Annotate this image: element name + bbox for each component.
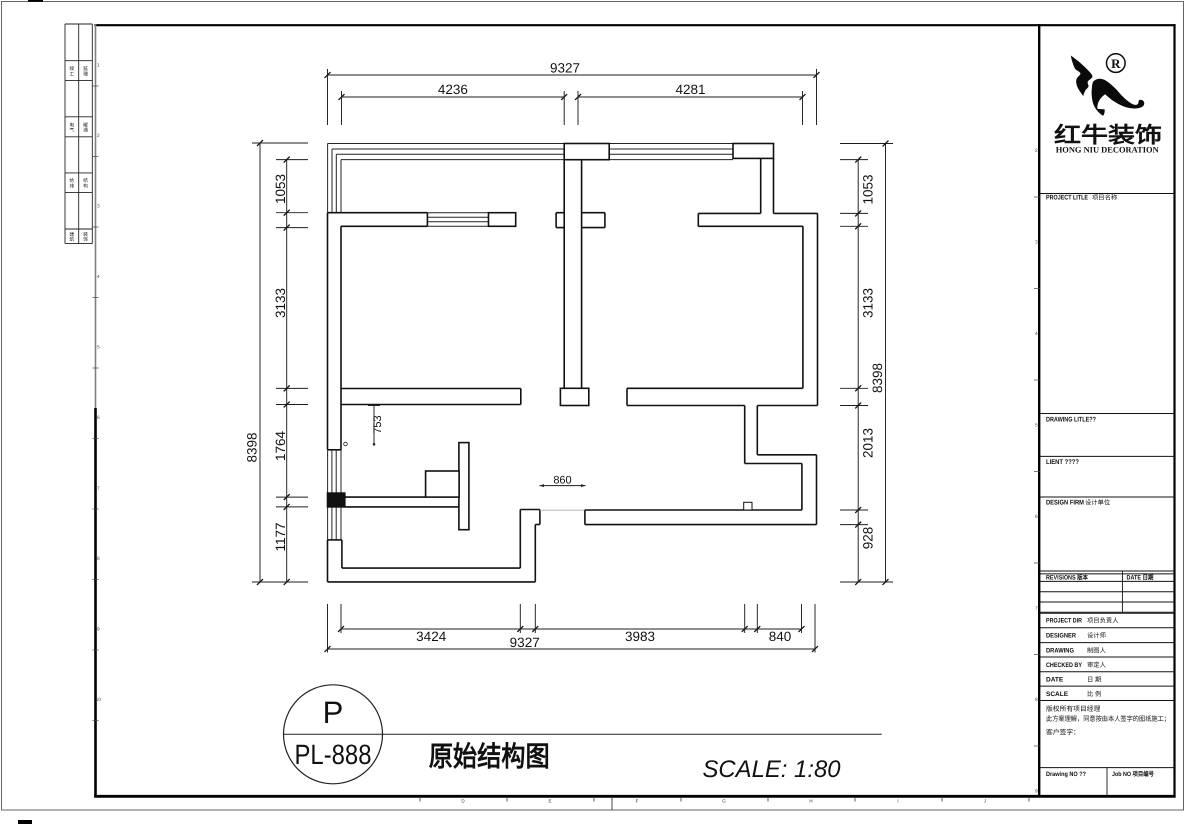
svg-text:6: 6: [97, 415, 100, 421]
svg-text:理: 理: [83, 71, 88, 77]
svg-text:928: 928: [861, 527, 876, 550]
svg-text:1764: 1764: [273, 430, 288, 461]
svg-text:电: 电: [69, 121, 74, 128]
svg-text:8398: 8398: [870, 363, 885, 393]
svg-text:饰: 饰: [83, 236, 88, 243]
svg-text:8: 8: [1035, 697, 1038, 703]
svg-text:制图人: 制图人: [1087, 647, 1107, 655]
svg-text:原始结构图: 原始结构图: [429, 741, 550, 772]
svg-text:设计师: 设计师: [1087, 632, 1106, 640]
svg-text:建: 建: [69, 231, 74, 238]
svg-text:SCALE: 1:80: SCALE: 1:80: [703, 756, 842, 783]
svg-text:4: 4: [1035, 331, 1038, 337]
svg-text:H: H: [809, 799, 812, 804]
svg-text:PROJECT DIR: PROJECT DIR: [1046, 618, 1082, 625]
svg-text:I: I: [897, 799, 898, 804]
svg-text:9: 9: [97, 627, 100, 633]
svg-text:E: E: [548, 799, 551, 804]
svg-text:4: 4: [97, 274, 100, 280]
svg-text:8: 8: [97, 556, 100, 562]
svg-text:LIENT ????: LIENT ????: [1046, 459, 1079, 466]
svg-text:F: F: [636, 799, 639, 804]
svg-text:3: 3: [1035, 240, 1038, 246]
svg-text:2013: 2013: [861, 428, 876, 458]
svg-text:工: 工: [69, 71, 74, 77]
svg-text:7: 7: [97, 486, 100, 492]
svg-text:840: 840: [769, 629, 792, 644]
svg-text:给: 给: [69, 177, 74, 184]
svg-text:构: 构: [83, 183, 88, 190]
svg-text:版权所有项目经理: 版权所有项目经理: [1046, 705, 1101, 713]
svg-text:860: 860: [553, 475, 571, 487]
svg-text:5: 5: [1035, 423, 1038, 429]
svg-text:1053: 1053: [861, 174, 876, 204]
svg-text:1: 1: [97, 63, 100, 69]
svg-text:比 例: 比 例: [1087, 690, 1101, 698]
svg-text:D: D: [461, 799, 465, 804]
svg-text:2: 2: [97, 133, 100, 139]
svg-text:DESIGNER: DESIGNER: [1046, 633, 1076, 640]
svg-text:CHECKED BY: CHECKED BY: [1046, 662, 1083, 669]
svg-text:10: 10: [96, 697, 102, 703]
svg-text:Job NO 项目编号: Job NO 项目编号: [1112, 770, 1155, 778]
svg-text:HONG NIU DECORATION: HONG NIU DECORATION: [1056, 145, 1160, 155]
svg-text:暖: 暖: [83, 122, 88, 128]
svg-text:DRAWING LITLE??: DRAWING LITLE??: [1046, 417, 1096, 424]
svg-text:3133: 3133: [273, 288, 288, 318]
svg-text:REVISIONS 版本: REVISIONS 版本: [1046, 574, 1089, 582]
svg-text:4281: 4281: [675, 82, 705, 97]
svg-text:4236: 4236: [438, 82, 468, 97]
svg-text:J: J: [984, 799, 986, 804]
svg-text:DATE 日期: DATE 日期: [1127, 574, 1154, 582]
svg-text:Drawing NO ??: Drawing NO ??: [1046, 771, 1086, 778]
svg-text:气: 气: [69, 127, 74, 134]
svg-text:3133: 3133: [861, 288, 876, 318]
svg-text:3983: 3983: [625, 629, 655, 644]
svg-text:PROJECT LITLE: PROJECT LITLE: [1046, 195, 1088, 202]
svg-text:通: 通: [83, 128, 88, 134]
svg-text:结: 结: [83, 177, 88, 184]
svg-text:9327: 9327: [510, 635, 540, 650]
svg-text:P: P: [323, 695, 344, 730]
svg-text:R: R: [1111, 56, 1121, 71]
svg-text:设计单位: 设计单位: [1085, 499, 1111, 507]
svg-text:3424: 3424: [416, 629, 447, 644]
svg-text:监: 监: [83, 65, 88, 72]
svg-text:审定人: 审定人: [1087, 661, 1107, 669]
svg-text:此方案理解，同意按由本人签字的图纸施工；: 此方案理解，同意按由本人签字的图纸施工；: [1046, 715, 1170, 723]
svg-text:6: 6: [1035, 514, 1038, 520]
svg-text:9327: 9327: [550, 61, 580, 76]
svg-text:5: 5: [97, 345, 100, 351]
svg-text:竣: 竣: [69, 65, 74, 72]
svg-text:筑: 筑: [69, 236, 74, 243]
svg-text:项目名称: 项目名称: [1092, 194, 1118, 202]
svg-text:G: G: [722, 799, 726, 804]
svg-text:SCALE: SCALE: [1046, 691, 1069, 698]
svg-text:7: 7: [1035, 606, 1038, 612]
svg-text:客户签字：: 客户签字：: [1046, 729, 1080, 737]
svg-text:DESIGN FIRM: DESIGN FIRM: [1046, 500, 1084, 507]
svg-text:1053: 1053: [273, 174, 288, 204]
svg-text:3: 3: [97, 204, 100, 210]
svg-text:753: 753: [372, 415, 384, 433]
svg-text:DRAWING: DRAWING: [1046, 648, 1074, 655]
svg-text:日 期: 日 期: [1087, 676, 1101, 684]
svg-text:PL-888: PL-888: [295, 739, 372, 770]
svg-text:1177: 1177: [273, 522, 288, 551]
svg-text:排: 排: [69, 183, 74, 190]
svg-text:2: 2: [1035, 148, 1038, 154]
svg-text:DATE: DATE: [1046, 677, 1064, 684]
svg-text:装: 装: [83, 231, 88, 238]
svg-text:项目负责人: 项目负责人: [1087, 617, 1119, 625]
svg-text:9: 9: [1035, 789, 1038, 795]
svg-text:8398: 8398: [245, 432, 260, 462]
